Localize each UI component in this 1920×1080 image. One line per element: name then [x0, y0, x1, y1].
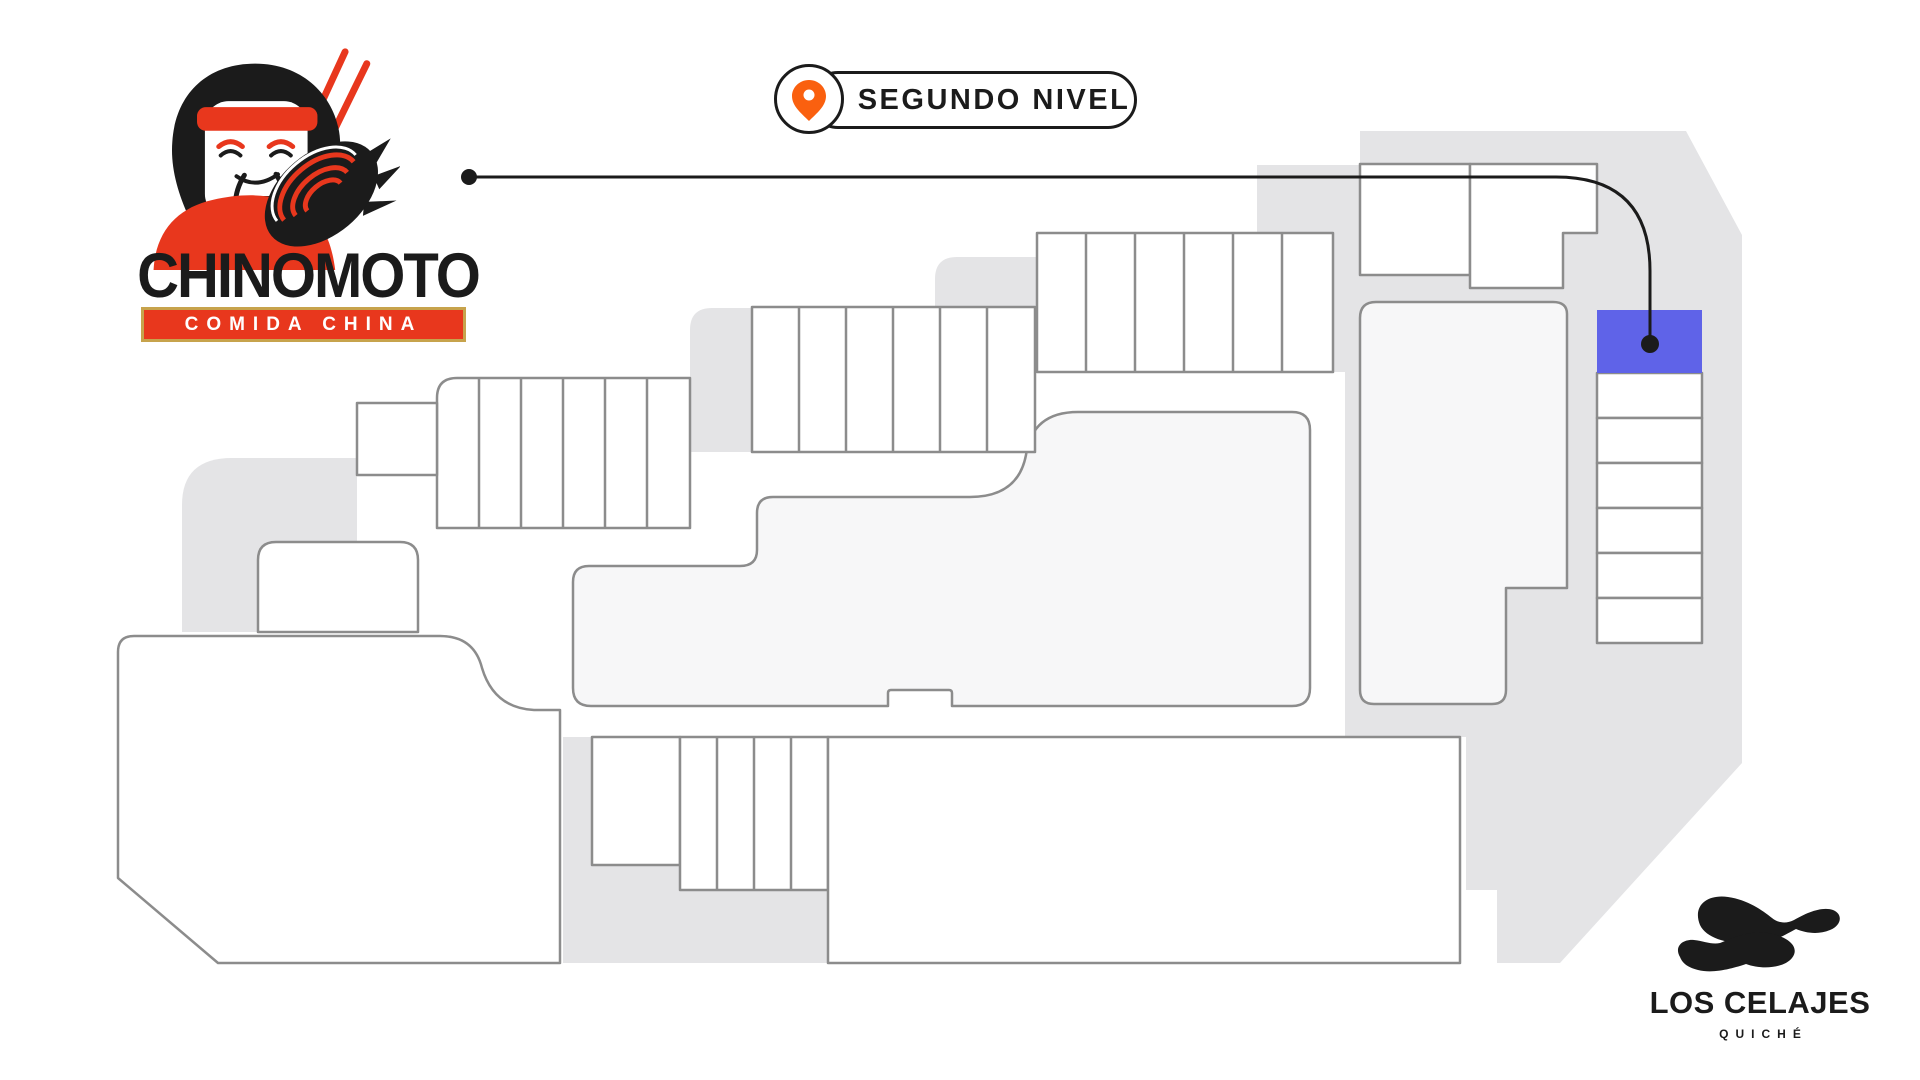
unit-bottom-wide — [828, 737, 1460, 963]
wayfinding-map-page: SEGUNDO NIVEL — [0, 0, 1920, 1080]
location-pin-icon — [789, 75, 829, 123]
connector-start-dot — [461, 169, 477, 185]
stack-unit-2 — [1597, 418, 1702, 463]
badge-label: SEGUNDO NIVEL — [858, 84, 1131, 117]
mall-cloud-icon — [1648, 878, 1872, 978]
brand-banner: COMIDA CHINA — [141, 307, 466, 342]
mall-logo: LOS CELAJES QUICHÉ — [1648, 878, 1872, 1041]
stack-unit-6 — [1597, 598, 1702, 643]
stack-unit-4 — [1597, 508, 1702, 553]
mall-name: LOS CELAJES — [1648, 985, 1872, 1021]
brand-mascot-icon — [150, 38, 400, 270]
mall-subtitle: QUICHÉ — [1648, 1027, 1872, 1041]
brand-name: CHINOMOTO — [133, 240, 483, 312]
stack-unit-5 — [1597, 553, 1702, 598]
brand-tagline: COMIDA CHINA — [185, 314, 423, 336]
unit-small-left — [357, 403, 437, 475]
unit-top-a — [1360, 164, 1470, 275]
unit-mid-left — [258, 542, 418, 632]
unit-bottom-left-large — [118, 636, 560, 963]
badge-circle — [774, 64, 844, 134]
connector-end-dot — [1641, 335, 1659, 353]
stack-unit-3 — [1597, 463, 1702, 508]
badge-pill: SEGUNDO NIVEL — [809, 71, 1137, 129]
stack-unit-1 — [1597, 373, 1702, 418]
location-badge: SEGUNDO NIVEL — [774, 64, 1144, 136]
unit-bottom-a — [592, 737, 680, 865]
